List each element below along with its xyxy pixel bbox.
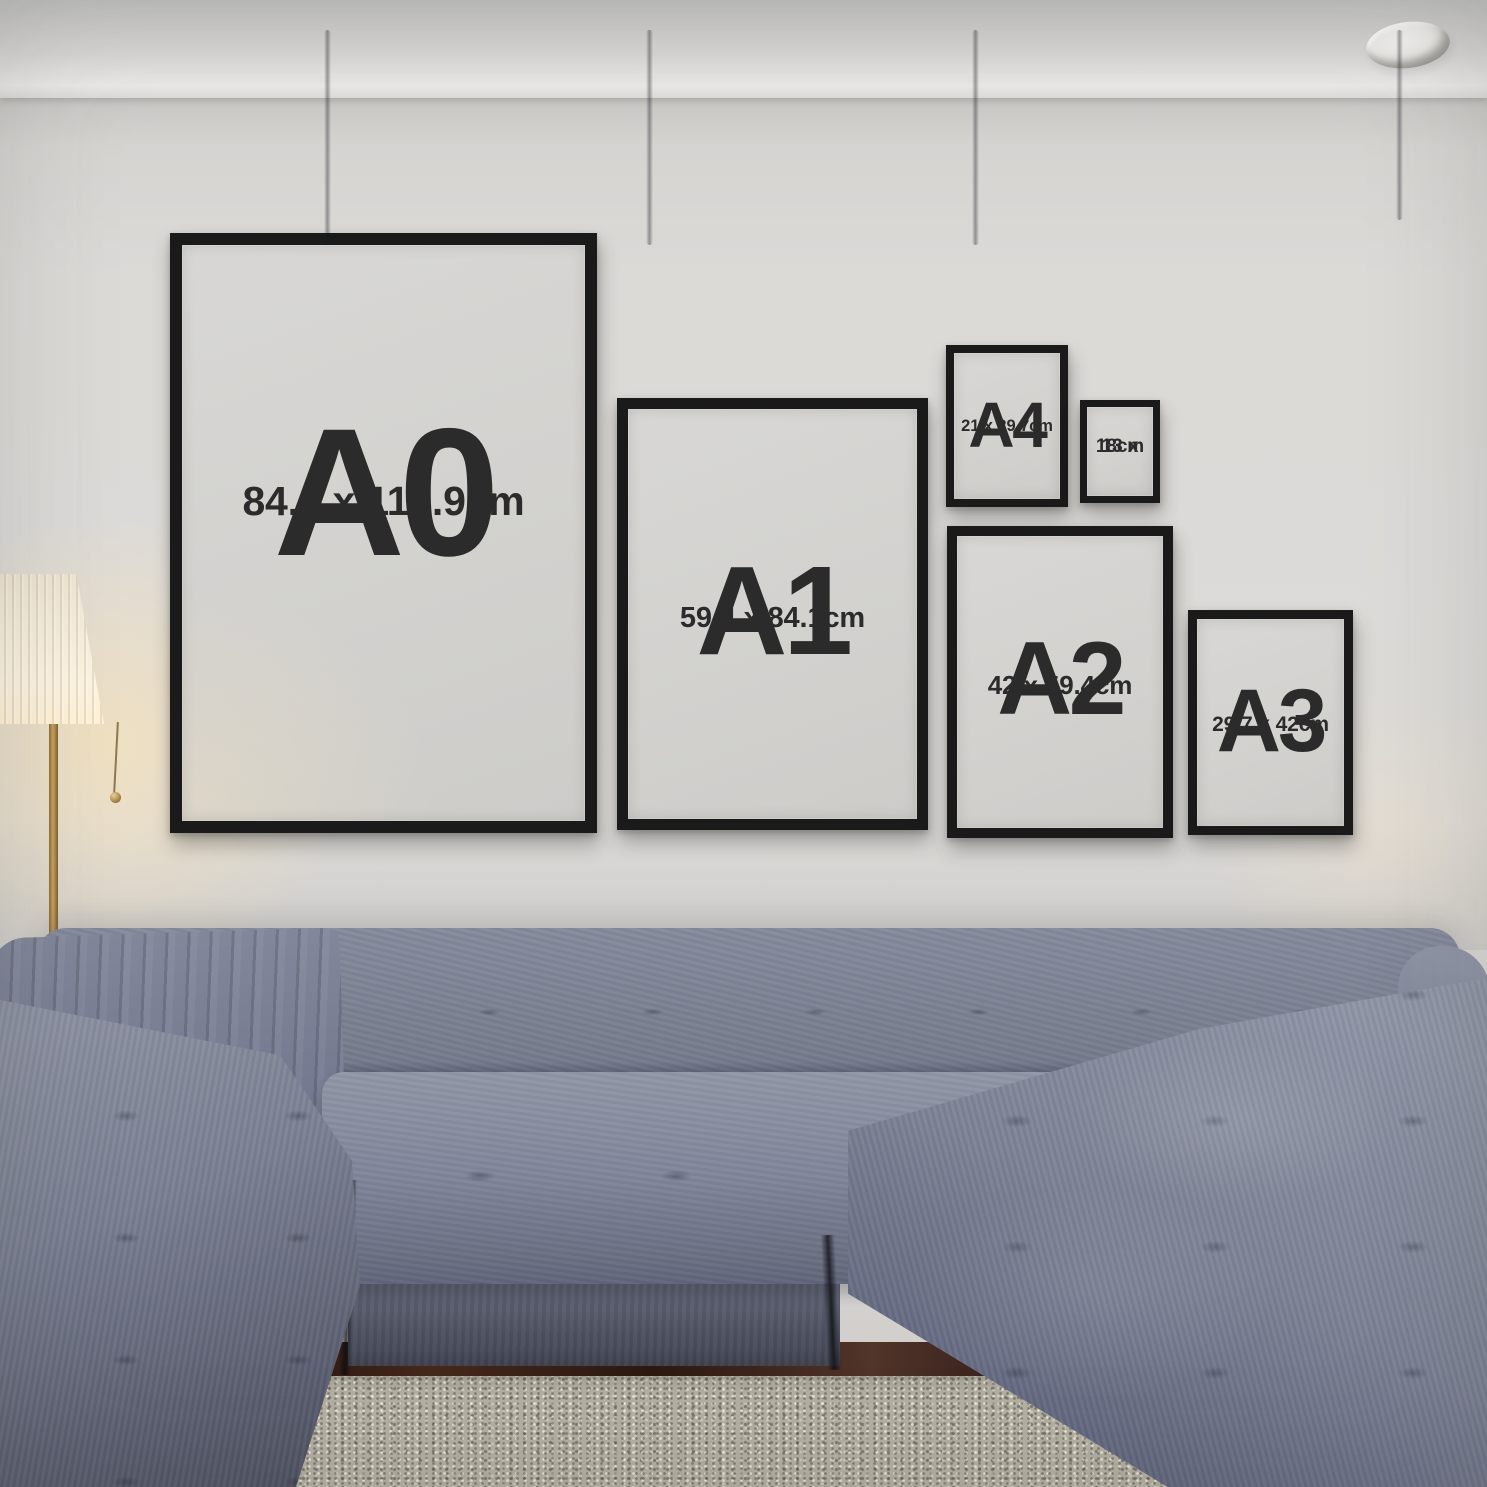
sofa-back-seam: [646, 30, 653, 245]
living-room-scene: A0 84.1 x 118.9cm A1 59.4 x 84.1cm A4 21…: [0, 0, 1487, 1487]
frame-a4: A4 21 x 29.7cm: [946, 345, 1068, 507]
frame-a4-mat: A4 21 x 29.7cm: [954, 353, 1060, 499]
frame-a1-mat: A1 59.4 x 84.1cm: [628, 409, 917, 819]
frame-a2: A2 42 x 59.4cm: [947, 526, 1173, 838]
frame-a4-size: 21 x 29.7cm: [961, 418, 1053, 435]
frame-a0: A0 84.1 x 118.9cm: [170, 233, 597, 833]
frame-a3-size: 29.7 x 42cm: [1212, 714, 1329, 736]
frame-13x18-mat: 13 x 18cm: [1087, 407, 1153, 496]
frame-a0-mat: A0 84.1 x 118.9cm: [182, 245, 585, 821]
ceiling: [0, 0, 1487, 98]
lamp-pull-ball: [110, 792, 121, 803]
sofa-back-seam: [324, 30, 331, 245]
frame-a1-size: 59.4 x 84.1cm: [680, 603, 865, 633]
sofa-back-seam: [972, 30, 979, 245]
frame-a0-size: 84.1 x 118.9cm: [242, 480, 524, 523]
frame-a1: A1 59.4 x 84.1cm: [617, 398, 928, 830]
frame-13x18-size-line2: 18cm: [1096, 436, 1144, 458]
frame-a2-size: 42 x 59.4cm: [988, 672, 1133, 699]
frame-13x18: 13 x 18cm: [1080, 400, 1160, 503]
frame-a3: A3 29.7 x 42cm: [1188, 610, 1353, 835]
frame-a2-mat: A2 42 x 59.4cm: [957, 536, 1163, 828]
sofa-back-seam: [1396, 30, 1403, 220]
frame-a3-mat: A3 29.7 x 42cm: [1197, 619, 1344, 826]
